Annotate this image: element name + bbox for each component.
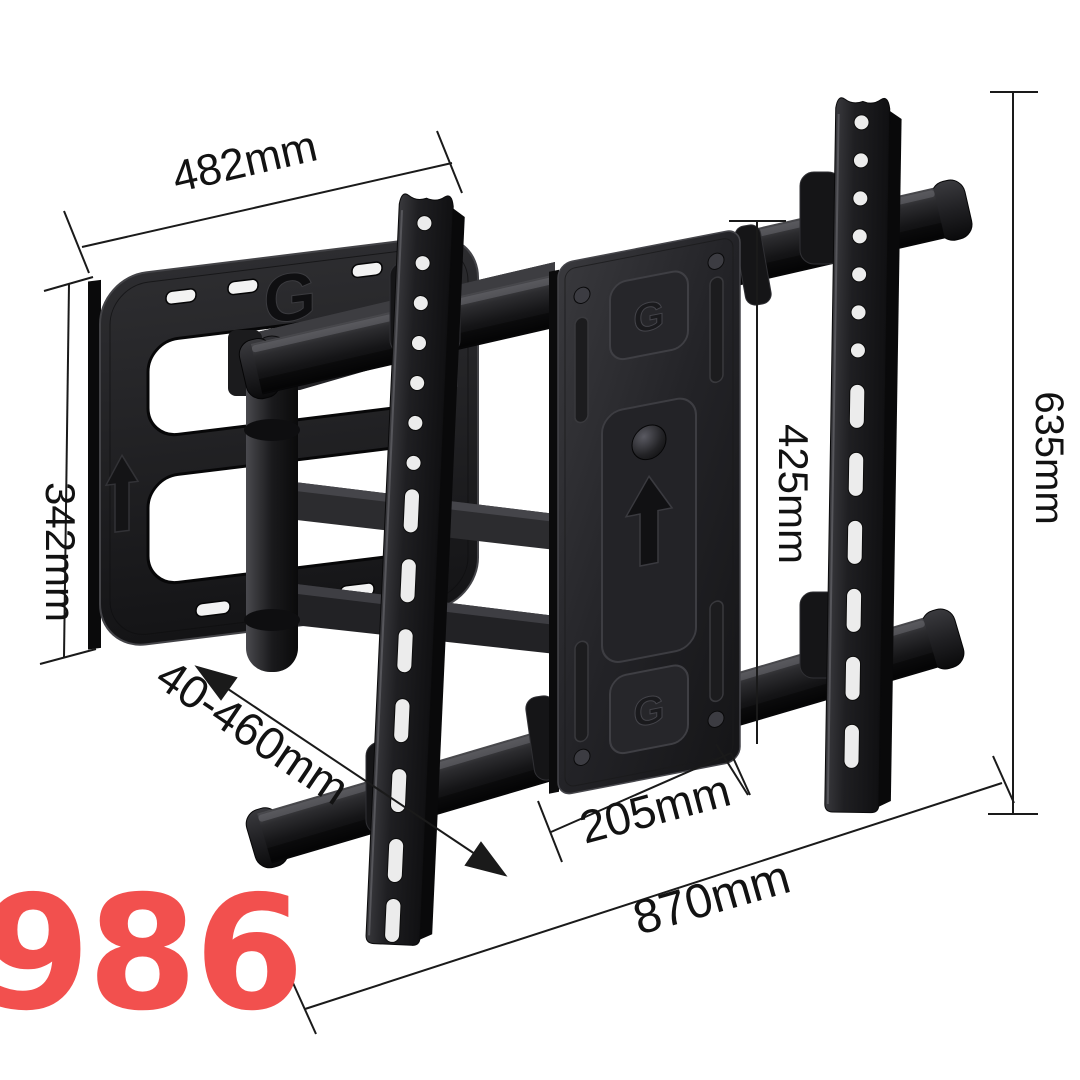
mounting-hole: [853, 153, 868, 168]
arrowhead-icon: [466, 843, 505, 875]
right-tv-rail: [825, 98, 902, 813]
pivot-ring: [244, 609, 300, 631]
vesa-plate: G G: [549, 229, 740, 798]
dim-label-635: 635mm: [1027, 391, 1071, 524]
dim-label-425: 425mm: [770, 424, 817, 564]
mounting-slot: [403, 489, 420, 534]
mounting-slot: [846, 588, 862, 632]
dim-tick: [437, 131, 462, 193]
pivot-ring: [244, 419, 300, 441]
mounting-hole: [852, 229, 867, 244]
vesa-slot: [710, 276, 723, 384]
vesa-logo-letter-bottom: G: [633, 685, 664, 737]
mounting-slot: [387, 838, 404, 883]
mounting-hole: [411, 335, 427, 351]
mounting-hole: [408, 415, 424, 431]
dim-tick: [64, 211, 89, 273]
mounting-slot: [845, 656, 861, 700]
product-dimension-diagram: G: [0, 0, 1080, 1080]
mounting-slot: [397, 628, 414, 673]
mounting-hole: [852, 267, 867, 282]
vesa-slot: [575, 640, 588, 743]
mounting-hole: [854, 115, 869, 130]
mounting-slot: [400, 558, 417, 603]
mounting-hole: [413, 295, 429, 311]
mounting-slot: [844, 724, 860, 768]
mounting-hole: [406, 455, 422, 471]
dim-342: 342mm: [37, 277, 96, 664]
mounting-slot: [849, 384, 865, 428]
mounting-hole: [850, 343, 865, 358]
vesa-logo-letter-top: G: [633, 291, 664, 343]
dim-tick: [993, 756, 1014, 803]
vesa-slot: [710, 600, 723, 703]
dim-label-342: 342mm: [37, 482, 84, 622]
mounting-slot: [393, 698, 410, 743]
dim-label-extension: 40-460mm: [147, 649, 358, 815]
mounting-slot: [847, 520, 863, 564]
mounting-hole: [851, 305, 866, 320]
mounting-hole: [415, 255, 431, 271]
dim-tick: [40, 649, 96, 664]
mounting-hole: [853, 191, 868, 206]
wall-mount-illustration: G: [0, 0, 1080, 1080]
mounting-slot: [848, 452, 864, 496]
model-number: 986: [0, 862, 301, 1046]
dim-label-870: 870mm: [627, 851, 795, 946]
vesa-slot: [575, 316, 588, 424]
mounting-hole: [409, 375, 425, 391]
dim-tick: [538, 801, 562, 862]
dim-635: 635mm: [988, 92, 1071, 814]
mounting-hole: [417, 215, 433, 231]
mounting-slot: [384, 898, 401, 943]
dim-label-482: 482mm: [168, 121, 322, 202]
